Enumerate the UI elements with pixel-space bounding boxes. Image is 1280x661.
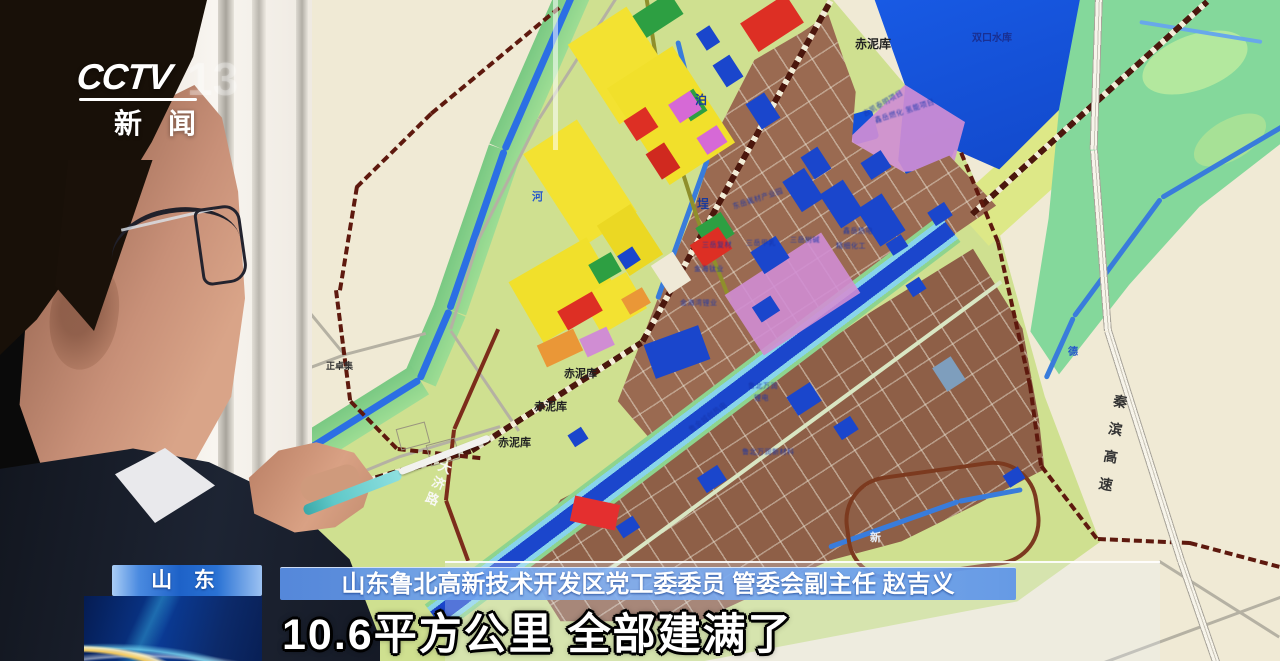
- map-label: 鲁北万润: [748, 383, 778, 390]
- map-label: 赤泥库: [564, 369, 597, 381]
- map-label: 泊: [695, 94, 707, 107]
- map-label: 三岳甲乳: [746, 240, 776, 247]
- region-badge: 山 东: [112, 565, 262, 596]
- map-label: 河: [532, 192, 543, 204]
- map-label: 新: [870, 533, 881, 545]
- map-label: 鲁金城创热电: [688, 402, 729, 434]
- speaker-title-bar: 山东鲁北高新技术开发区党工委委员 管委会副主任 赵吉义: [280, 567, 1016, 600]
- subtitle-text: 10.6平方公里 全部建满了: [282, 600, 793, 661]
- map-label: 赤泥库: [498, 438, 531, 450]
- cctv-wordmark: CCTV: [75, 56, 173, 98]
- logo-underline: [79, 98, 197, 101]
- map-label: 金海钛业: [694, 266, 724, 273]
- map-label: 双口水库: [972, 34, 1012, 45]
- map-label: 鑫岳热电: [843, 228, 873, 235]
- channel-news-label: 新闻: [114, 102, 222, 142]
- map-label: 赤泥库: [855, 38, 891, 51]
- lower-third-graphic: [84, 596, 262, 661]
- map-label: 正卓集: [326, 362, 353, 371]
- map-label: 埕: [697, 198, 709, 211]
- map-label: 德: [1068, 348, 1078, 359]
- cctv-logo: 13 CCTV 新闻: [75, 50, 260, 145]
- map-label: 三岳复材: [702, 242, 732, 249]
- map-label: 鲁北万润新材料: [742, 449, 795, 456]
- map-label: 锂电: [754, 395, 769, 402]
- map-label: 赤泥库: [534, 402, 567, 414]
- map-label: 三岳树碱: [790, 237, 820, 244]
- map-label: 金海湾锂业: [680, 300, 718, 307]
- map-label: 秦滨高速: [1095, 393, 1129, 506]
- map-label: 精细化工: [836, 243, 866, 250]
- tv-frame: 赤泥库赤泥库赤泥库赤泥库正卓集河泊埕德新双口水库大济路秦滨高速鑫岳燃化 氢能项目…: [0, 0, 1280, 661]
- map-label: 东岳氟材产业园: [732, 188, 784, 211]
